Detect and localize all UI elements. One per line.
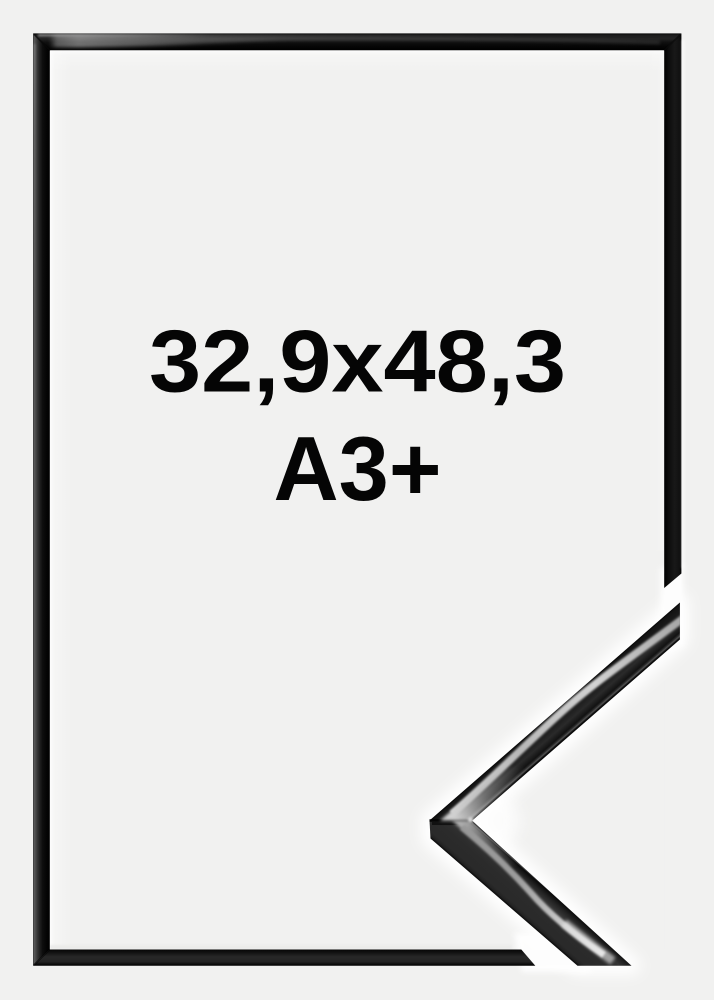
svg-text:A3+: A3+ (274, 419, 442, 520)
svg-text:32,9x48,3: 32,9x48,3 (149, 312, 566, 411)
